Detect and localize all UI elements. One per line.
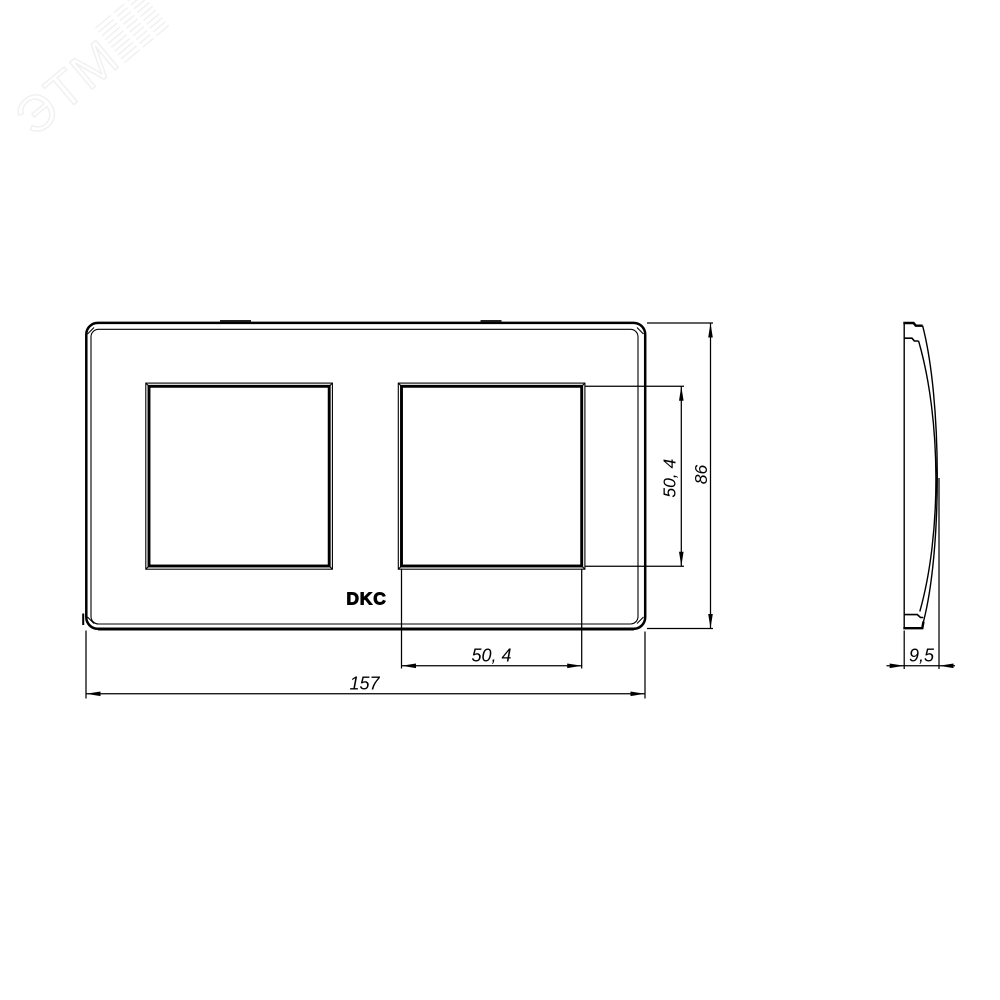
svg-text:50, 4: 50, 4 [471,646,511,666]
svg-text:DKC: DKC [346,589,386,609]
svg-text:50, 4: 50, 4 [660,458,680,497]
svg-text:86: 86 [691,465,711,485]
svg-text:9,5: 9,5 [909,646,935,666]
svg-text:157: 157 [349,674,380,694]
